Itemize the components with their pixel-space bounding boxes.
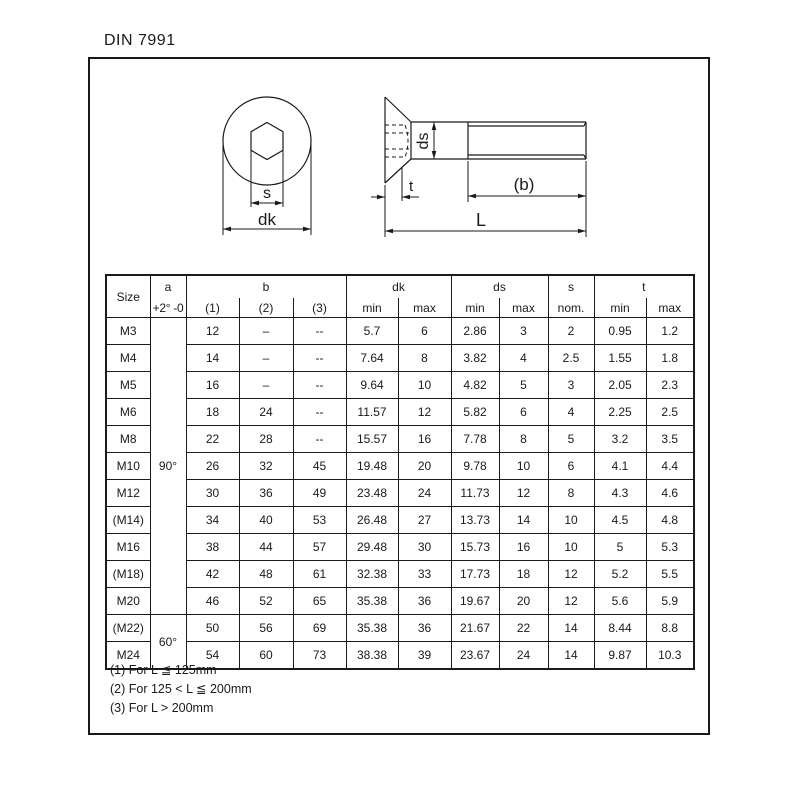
table-cell: 32.38 [346,561,398,588]
table-cell: 29.48 [346,534,398,561]
table-row: M390°12–--5.762.86320.951.2 [106,318,694,345]
table-cell: 4.6 [646,480,694,507]
col-subheader-ds-max: max [499,298,548,318]
table-cell: 2.86 [451,318,499,345]
table-row: M82228--15.57167.78853.23.5 [106,426,694,453]
table-cell: 5.82 [451,399,499,426]
table-row: (M14)34405326.482713.7314104.54.8 [106,507,694,534]
table-cell: 4.8 [646,507,694,534]
table-cell: 35.38 [346,615,398,642]
col-subheader-dk-max: max [398,298,451,318]
table-cell: – [239,372,293,399]
table-cell: 4.4 [646,453,694,480]
table-cell: 4.1 [594,453,646,480]
table-cell: 3.2 [594,426,646,453]
col-subheader-t-min: min [594,298,646,318]
page-title: DIN 7991 [104,32,176,50]
table-cell: 15.57 [346,426,398,453]
table-cell: 5 [594,534,646,561]
table-cell: 8 [398,345,451,372]
col-subheader-b3: (3) [293,298,346,318]
col-subheader-ds-min: min [451,298,499,318]
table-cell: 22 [499,615,548,642]
screw-top-view-drawing: s dk [223,97,311,235]
table-cell: 2.5 [548,345,594,372]
dim-label-dk: dk [258,210,276,229]
table-cell: 10 [499,453,548,480]
table-cell: 46 [186,588,239,615]
table-cell: 7.64 [346,345,398,372]
table-cell: 69 [293,615,346,642]
table-cell: 14 [499,507,548,534]
table-header-sub-row: +2° -0 (1) (2) (3) min max min max nom. … [106,298,694,318]
col-subheader-b1: (1) [186,298,239,318]
table-cell: 5.2 [594,561,646,588]
col-header-b: b [186,275,346,298]
table-cell: 18 [499,561,548,588]
table-row: (M18)42486132.383317.7318125.25.5 [106,561,694,588]
table-cell: 6 [499,399,548,426]
table-cell: 3 [499,318,548,345]
table-cell: 10 [398,372,451,399]
table-cell: 44 [239,534,293,561]
table-cell: 11.73 [451,480,499,507]
table-cell: 26 [186,453,239,480]
table-cell: 1.55 [594,345,646,372]
table-cell: 6 [548,453,594,480]
table-cell: 26.48 [346,507,398,534]
table-row: M2046526535.383619.6720125.65.9 [106,588,694,615]
table-cell: 12 [398,399,451,426]
footnote-3: (3) For L > 200mm [110,699,252,718]
table-cell: 4 [548,399,594,426]
table-cell: 4.5 [594,507,646,534]
table-cell: -- [293,372,346,399]
table-cell: -- [293,399,346,426]
table-cell: 2.5 [646,399,694,426]
table-cell: 8 [548,480,594,507]
screw-side-view-drawing: ds t (b) L [371,97,586,237]
col-header-dk: dk [346,275,451,298]
table-cell: 30 [186,480,239,507]
table-cell: 30 [398,534,451,561]
table-cell: 9.78 [451,453,499,480]
table-cell: 3 [548,372,594,399]
col-header-ds: ds [451,275,548,298]
table-cell: 53 [293,507,346,534]
table-cell: 2.3 [646,372,694,399]
cell-size: M4 [106,345,150,372]
dim-label-L: L [476,210,486,230]
table-cell: 3.82 [451,345,499,372]
cell-size: M6 [106,399,150,426]
table-cell: 16 [499,534,548,561]
table-cell: 5.3 [646,534,694,561]
table-cell: 9.64 [346,372,398,399]
table-cell: 38.38 [346,642,398,670]
technical-drawings: s dk [90,59,708,294]
table-cell: 56 [239,615,293,642]
cell-size: M8 [106,426,150,453]
table-cell: 38 [186,534,239,561]
dim-label-b: (b) [514,175,535,194]
table-cell: 10 [548,534,594,561]
table-cell: 10.3 [646,642,694,670]
dim-label-s: s [263,185,271,202]
table-cell: 65 [293,588,346,615]
table-cell: 11.57 [346,399,398,426]
col-subheader-dk-min: min [346,298,398,318]
table-cell: 52 [239,588,293,615]
table-cell: 8.44 [594,615,646,642]
table-cell: 16 [186,372,239,399]
cell-size: M10 [106,453,150,480]
table-cell: 18 [186,399,239,426]
table-cell: 8 [499,426,548,453]
table-header-group-row: Size a b dk ds s t [106,275,694,298]
table-cell: 40 [239,507,293,534]
table-row: M1230364923.482411.731284.34.6 [106,480,694,507]
table-cell: 20 [499,588,548,615]
table-cell: 5.5 [646,561,694,588]
table-row: M61824--11.57125.82642.252.5 [106,399,694,426]
table-cell: 4.82 [451,372,499,399]
cell-size: M16 [106,534,150,561]
table-cell: 19.48 [346,453,398,480]
table-cell: 2 [548,318,594,345]
table-cell: 34 [186,507,239,534]
col-subheader-a-tolerance: +2° -0 [150,298,186,318]
table-row: M1026324519.48209.781064.14.4 [106,453,694,480]
table-cell: -- [293,318,346,345]
table-cell: 5.9 [646,588,694,615]
col-header-size: Size [106,275,150,318]
table-cell: 12 [186,318,239,345]
table-cell: – [239,345,293,372]
col-header-t: t [594,275,694,298]
table-cell: 33 [398,561,451,588]
table-cell: 22 [186,426,239,453]
table-cell: 8.8 [646,615,694,642]
cell-size: M5 [106,372,150,399]
footnote-2: (2) For 125 < L ≦ 200mm [110,680,252,699]
table-cell: 3.5 [646,426,694,453]
cell-size: (M14) [106,507,150,534]
table-cell: 24 [499,642,548,670]
table-cell: -- [293,345,346,372]
table-row: M1638445729.483015.73161055.3 [106,534,694,561]
table-cell: 12 [548,561,594,588]
col-header-a: a [150,275,186,298]
footnote-1: (1) For L ≦ 125mm [110,661,252,680]
table-cell: 0.95 [594,318,646,345]
cell-size: (M18) [106,561,150,588]
table-cell: 36 [398,615,451,642]
table-cell: 17.73 [451,561,499,588]
cell-size: M3 [106,318,150,345]
table-cell: 14 [548,615,594,642]
table-row: M414–--7.6483.8242.51.551.8 [106,345,694,372]
table-cell: 73 [293,642,346,670]
table-cell: 19.67 [451,588,499,615]
table-cell: 42 [186,561,239,588]
table-cell: 4 [499,345,548,372]
hex-socket-hidden-lines [385,125,409,157]
table-cell: 27 [398,507,451,534]
table-cell: 36 [239,480,293,507]
table-cell: 24 [398,480,451,507]
table-cell: 5 [499,372,548,399]
table-cell: 4.3 [594,480,646,507]
table-cell: 1.8 [646,345,694,372]
table-cell: 28 [239,426,293,453]
table-cell: 50 [186,615,239,642]
col-header-s: s [548,275,594,298]
table-cell: 39 [398,642,451,670]
table-cell: 2.25 [594,399,646,426]
cell-size: M12 [106,480,150,507]
table-cell: 23.48 [346,480,398,507]
table-cell: 14 [186,345,239,372]
table-cell: 5.6 [594,588,646,615]
table-cell: 12 [499,480,548,507]
table-cell: 21.67 [451,615,499,642]
table-cell: 2.05 [594,372,646,399]
document-frame: s dk [88,57,710,735]
table-cell: 23.67 [451,642,499,670]
table-row: M516–--9.64104.82532.052.3 [106,372,694,399]
table-cell: 5.7 [346,318,398,345]
table-cell: 36 [398,588,451,615]
table-cell: – [239,318,293,345]
table-cell: 15.73 [451,534,499,561]
table-cell: -- [293,426,346,453]
dimension-table: Size a b dk ds s t +2° -0 (1) (2) (3) mi… [105,274,695,670]
table-cell: 12 [548,588,594,615]
table-cell: 35.38 [346,588,398,615]
table-cell: 49 [293,480,346,507]
table-cell: 20 [398,453,451,480]
table-cell: 61 [293,561,346,588]
table-cell: 48 [239,561,293,588]
table-cell: 24 [239,399,293,426]
table-cell: 32 [239,453,293,480]
col-subheader-s-nom: nom. [548,298,594,318]
table-cell: 10 [548,507,594,534]
table-cell: 16 [398,426,451,453]
cell-angle-90: 90° [150,318,186,615]
table-cell: 7.78 [451,426,499,453]
table-cell: 5 [548,426,594,453]
dim-label-ds: ds [415,133,432,150]
footnotes: (1) For L ≦ 125mm (2) For 125 < L ≦ 200m… [110,661,252,718]
table-cell: 14 [548,642,594,670]
table-cell: 9.87 [594,642,646,670]
dim-label-t: t [409,178,414,195]
col-subheader-t-max: max [646,298,694,318]
cell-size: (M22) [106,615,150,642]
table-cell: 13.73 [451,507,499,534]
col-subheader-b2: (2) [239,298,293,318]
table-cell: 1.2 [646,318,694,345]
table-cell: 45 [293,453,346,480]
table-cell: 6 [398,318,451,345]
table-row: (M22)60°50566935.383621.6722148.448.8 [106,615,694,642]
table-cell: 57 [293,534,346,561]
cell-size: M20 [106,588,150,615]
